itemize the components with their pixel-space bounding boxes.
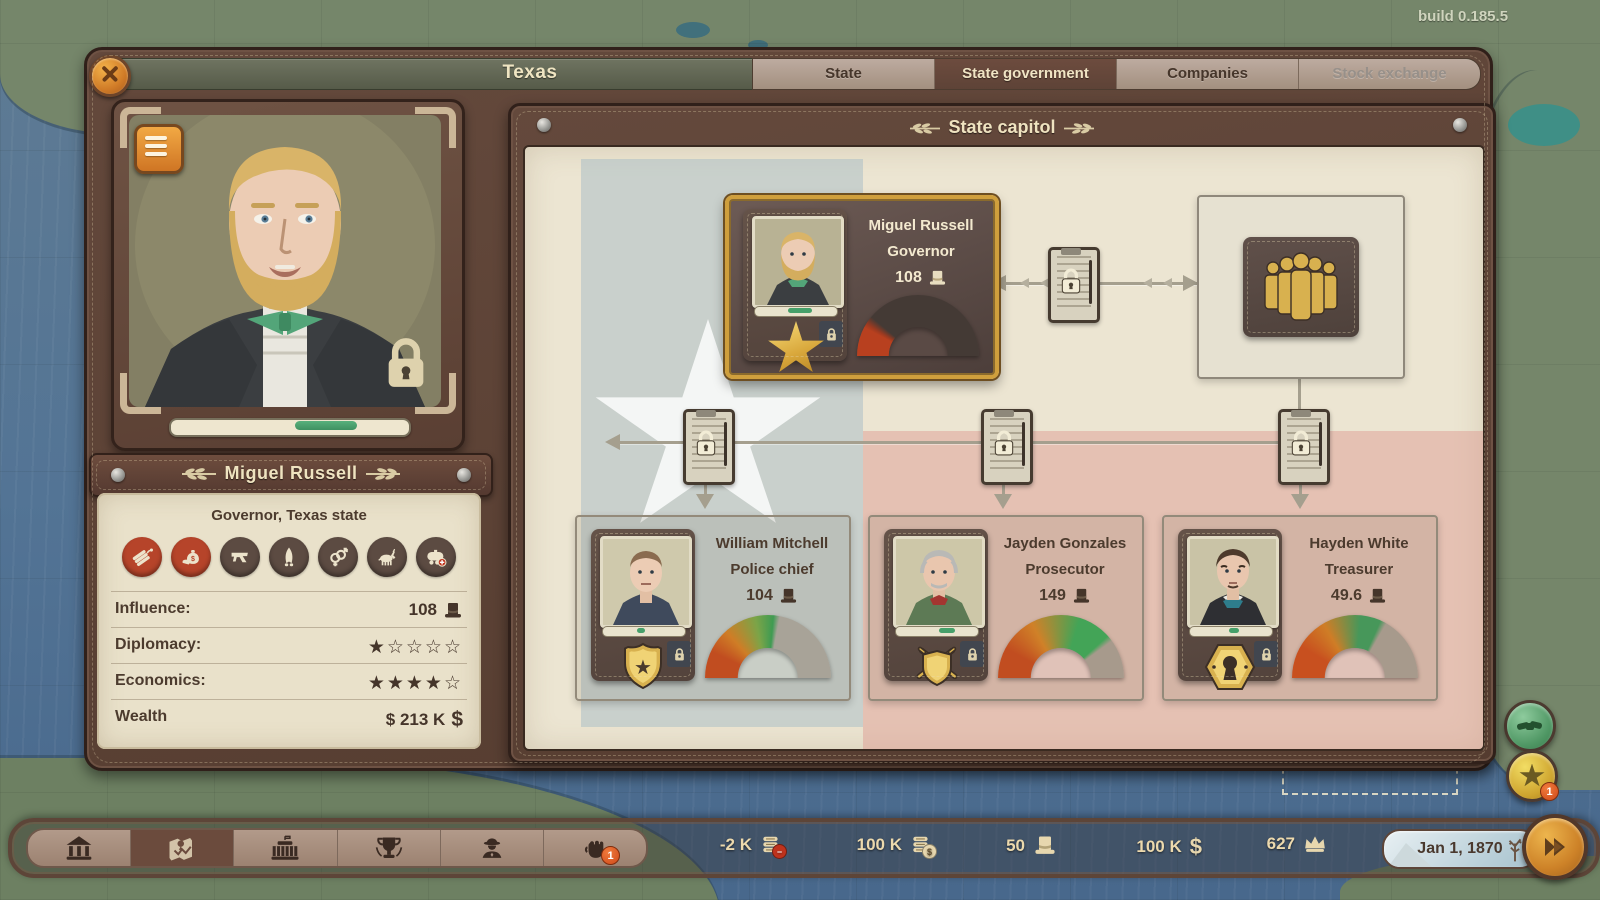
resource-funds: 100 K $: [1082, 834, 1202, 860]
character-progress-bar: [169, 418, 411, 437]
nav-agent-button[interactable]: [441, 830, 544, 866]
top-hat-icon: [928, 269, 947, 287]
loyalty-gauge: [705, 615, 831, 678]
laurel-icon: [910, 122, 940, 135]
top-hat-icon: [1033, 834, 1057, 857]
nav-trophy-button[interactable]: [338, 830, 441, 866]
character-name-plate: Miguel Russell: [89, 453, 493, 497]
gender-icon[interactable]: [318, 537, 358, 577]
portrait-menu-button[interactable]: [134, 124, 184, 174]
diplomacy-stars: ★☆☆☆☆: [368, 636, 463, 658]
date-display[interactable]: Jan 1, 1870: [1382, 829, 1538, 869]
top-hat-icon: [1368, 587, 1387, 605]
portrait-patch: [743, 209, 847, 361]
node-name: Jayden Gonzales: [992, 535, 1138, 552]
notification-badge: 1: [601, 846, 620, 865]
close-button[interactable]: [89, 55, 131, 97]
character-name: Miguel Russell: [224, 463, 357, 483]
lock-icon: [960, 641, 984, 667]
police-badge-icon: ★: [615, 641, 671, 698]
revolver-icon[interactable]: [220, 537, 260, 577]
resource-income: -2 K −: [652, 834, 782, 856]
main-nav: 1: [26, 828, 648, 868]
dynamite-icon[interactable]: [122, 537, 162, 577]
governor-card[interactable]: Miguel Russell Governor 108: [725, 195, 999, 379]
node-title: Governor: [851, 243, 991, 260]
economics-stars: ★★★★☆: [368, 672, 463, 694]
contract-lock-icon[interactable]: [1278, 409, 1330, 485]
stat-influence: Influence: 108: [111, 591, 467, 628]
approval-gauge: [857, 295, 979, 356]
bank-icon: [64, 835, 94, 861]
state-window: Texas State State government Companies S…: [84, 47, 1493, 771]
node-title: Police chief: [699, 561, 845, 578]
node-title: Prosecutor: [992, 561, 1138, 578]
play-speed-button[interactable]: [1522, 814, 1588, 880]
laurel-icon: [182, 467, 216, 481]
electorate-node[interactable]: [1197, 195, 1405, 379]
mini-progress-bar: [754, 306, 838, 317]
mini-portrait: [752, 216, 844, 308]
map-icon: [167, 835, 197, 861]
achievement-star-button[interactable]: 1: [1506, 750, 1558, 802]
bottom-toolbar: 1 -2 K − 100 K $ 50 100 K $ 627: [8, 818, 1600, 878]
node-influence: 149: [992, 587, 1138, 605]
portrait-frame: [111, 99, 465, 451]
bribe-money-bag-icon[interactable]: $: [171, 537, 211, 577]
tab-state[interactable]: State: [753, 59, 935, 89]
loyalty-gauge: [998, 615, 1124, 678]
shield-swords-icon: [908, 641, 966, 698]
wealth-value: $ 213 K: [386, 710, 446, 730]
node-influence: 104: [699, 587, 845, 605]
portrait-patch: [884, 529, 988, 681]
lock-icon: [1254, 641, 1278, 667]
stat-economics: Economics: ★★★★☆: [111, 663, 467, 700]
resource-cash: 100 K $: [802, 834, 932, 856]
laurel-icon: [366, 467, 400, 481]
locked-icon: [380, 334, 432, 392]
dollar-icon: $: [1190, 834, 1202, 860]
date-label: Jan 1, 1870: [1417, 840, 1502, 858]
prayer-icon[interactable]: [269, 537, 309, 577]
svg-text:★: ★: [634, 655, 652, 679]
nav-bank-button[interactable]: [28, 830, 131, 866]
trophy-icon: [374, 835, 404, 861]
contract-lock-icon[interactable]: [683, 409, 735, 485]
crowd-patch: [1243, 237, 1359, 337]
tab-stock-exchange: Stock exchange: [1299, 59, 1480, 89]
official-card-treasurer[interactable]: Hayden White Treasurer 49.6: [1162, 515, 1438, 701]
state-capitol-panel: State capitol: [508, 103, 1496, 764]
agent-icon: [478, 835, 506, 861]
stat-diplomacy: Diplomacy: ★☆☆☆☆: [111, 627, 467, 664]
handshake-icon: [1516, 715, 1544, 737]
game-screen: build 0.185.5 1 Texas State State govern…: [0, 0, 1600, 900]
portrait-patch: [1178, 529, 1282, 681]
dollar-icon: $: [451, 708, 463, 732]
node-name: Hayden White: [1286, 535, 1432, 552]
coins-dollar-icon: $: [910, 834, 932, 856]
keyhole-badge-icon: [1202, 641, 1258, 698]
node-title: Treasurer: [1286, 561, 1432, 578]
diplomacy-handshake-button[interactable]: [1504, 700, 1556, 752]
nav-protest-fist-button[interactable]: 1: [544, 830, 646, 866]
resource-influence: 50: [962, 834, 1057, 857]
org-chart-area: Miguel Russell Governor 108: [523, 145, 1485, 751]
coins-minus-icon: −: [760, 834, 782, 856]
node-name: William Mitchell: [699, 535, 845, 552]
stat-wealth: Wealth $ 213 K$: [111, 699, 467, 736]
crown-icon: [1303, 834, 1327, 854]
node-influence: 108: [851, 269, 991, 287]
capitol-header: State capitol: [948, 117, 1055, 137]
tab-companies[interactable]: Companies: [1117, 59, 1299, 89]
white-house-icon: [269, 835, 301, 861]
notification-badge: 1: [1540, 782, 1559, 801]
top-hat-icon: [1072, 587, 1091, 605]
tab-state-government[interactable]: State government: [935, 59, 1117, 89]
node-name: Miguel Russell: [851, 217, 991, 234]
resource-prestige: 627: [1217, 834, 1327, 854]
top-hat-icon: [443, 601, 463, 620]
progress-fill: [295, 421, 357, 430]
official-card-prosecutor[interactable]: Jayden Gonzales Prosecutor 149: [868, 515, 1144, 701]
laurel-icon: [1064, 122, 1094, 135]
donkey-icon[interactable]: [367, 537, 407, 577]
frame-corner: [415, 107, 456, 148]
loyalty-gauge: [1292, 615, 1418, 678]
governor-star-emblem: [767, 321, 825, 377]
tab-bar: State State government Companies Stock e…: [752, 58, 1481, 90]
frame-corner: [120, 373, 161, 414]
play-icon: [1542, 836, 1568, 858]
nav-white-house-button[interactable]: [234, 830, 337, 866]
tank-car-plus-icon[interactable]: [416, 537, 456, 577]
trait-icons-row: $: [97, 537, 481, 577]
lock-icon: [667, 641, 691, 667]
character-role: Governor, Texas state: [97, 507, 481, 524]
character-info-card: Governor, Texas state $: [97, 493, 481, 749]
contract-lock-icon[interactable]: [1048, 247, 1100, 323]
official-card-police-chief[interactable]: ★ William Mitchell Police chief 104: [575, 515, 851, 701]
crowd-icon: [1259, 252, 1343, 322]
contract-lock-icon[interactable]: [981, 409, 1033, 485]
influence-value: 108: [409, 600, 437, 620]
node-influence: 49.6: [1286, 587, 1432, 605]
lock-icon: [819, 321, 843, 347]
build-version-label: build 0.185.5: [1418, 8, 1508, 25]
window-title: Texas: [350, 62, 710, 84]
hamburger-icon: [145, 136, 167, 140]
top-hat-icon: [779, 587, 798, 605]
portrait-patch: ★: [591, 529, 695, 681]
svg-text:$: $: [191, 556, 195, 563]
nav-map-button[interactable]: [131, 830, 234, 866]
